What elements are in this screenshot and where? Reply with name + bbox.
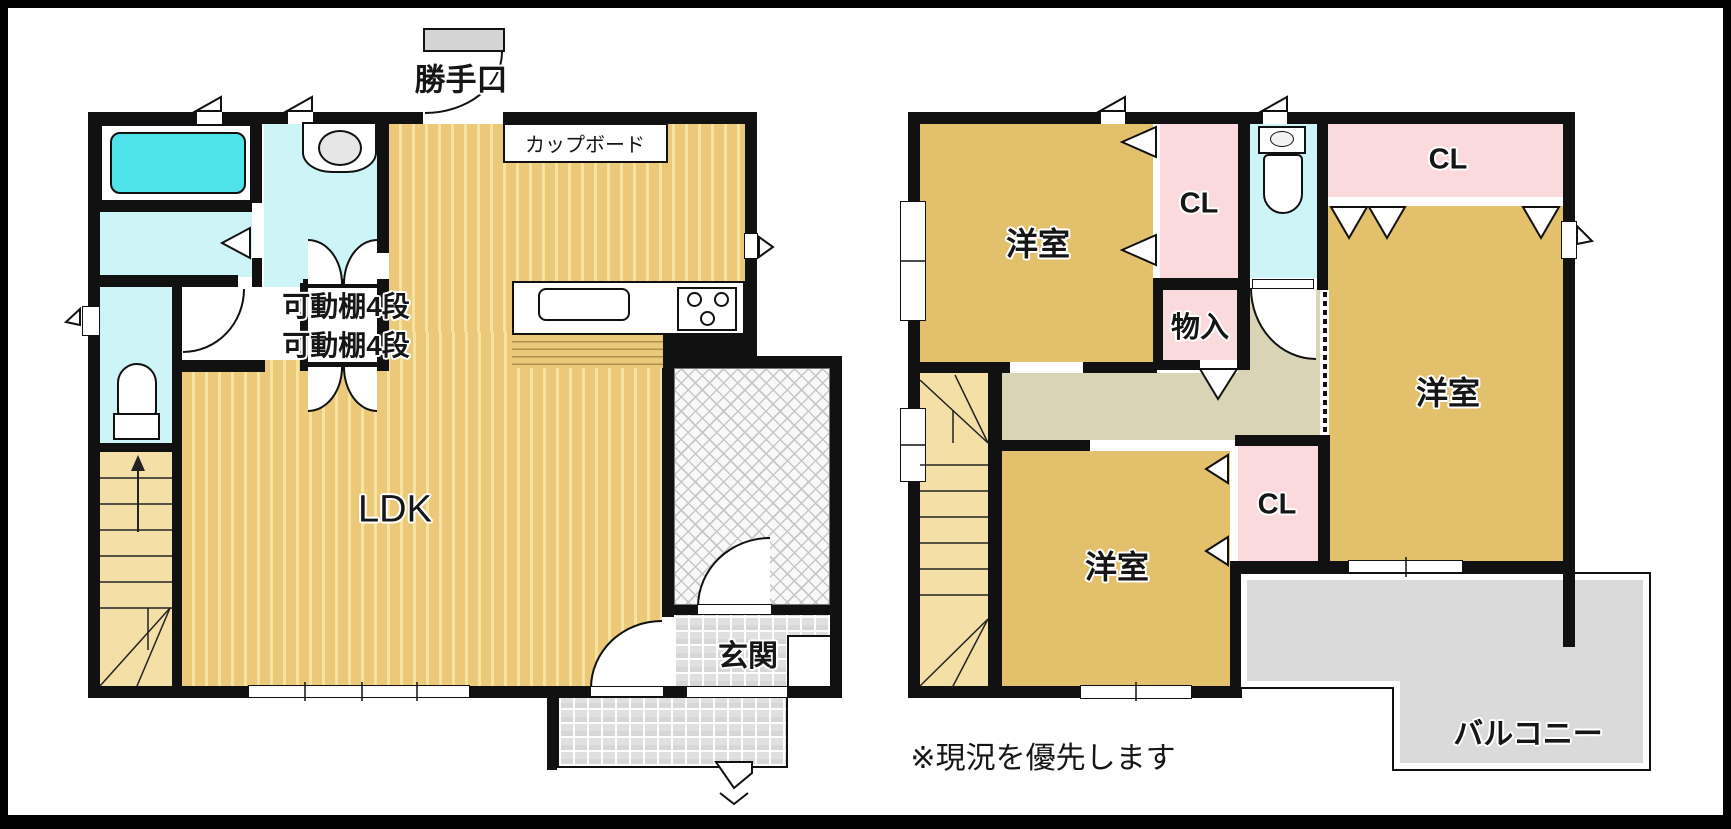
image-border	[1723, 0, 1731, 829]
label-movable-shelf-1: 可動棚4段	[282, 285, 410, 325]
footnote-text: ※現況を優先します	[910, 733, 1175, 777]
stairs-1f-treads	[100, 478, 172, 686]
wall	[1563, 573, 1575, 647]
floorplan-image: 勝手口 カップボード 可動棚4段 可動棚4段 LDK 玄関 洋室 CL 物入 C…	[0, 0, 1731, 829]
label-back-door: 勝手口	[415, 55, 508, 100]
image-border	[0, 815, 1731, 829]
label-bedroom-south: 洋室	[1085, 542, 1149, 588]
label-cupboard: カップボード	[525, 129, 645, 158]
entrance-arrow-icon	[716, 762, 752, 804]
label-bedroom-east: 洋室	[1416, 368, 1480, 414]
image-border	[0, 0, 1731, 8]
label-bedroom-nw: 洋室	[1006, 219, 1070, 265]
line-overlay	[0, 0, 1731, 829]
label-closet-middle: CL	[1258, 489, 1297, 522]
label-movable-shelf-2: 可動棚4段	[282, 324, 410, 364]
label-ldk: LDK	[358, 489, 432, 532]
stairs-2f-treads	[920, 375, 988, 688]
image-border	[0, 0, 8, 829]
label-storage-monoire: 物入	[1171, 304, 1229, 346]
label-closet-east: CL	[1429, 144, 1468, 177]
label-balcony: バルコニー	[1453, 709, 1602, 753]
label-closet-west: CL	[1180, 188, 1219, 221]
stairs-up-arrow	[131, 455, 145, 532]
label-entrance: 玄関	[718, 631, 778, 675]
